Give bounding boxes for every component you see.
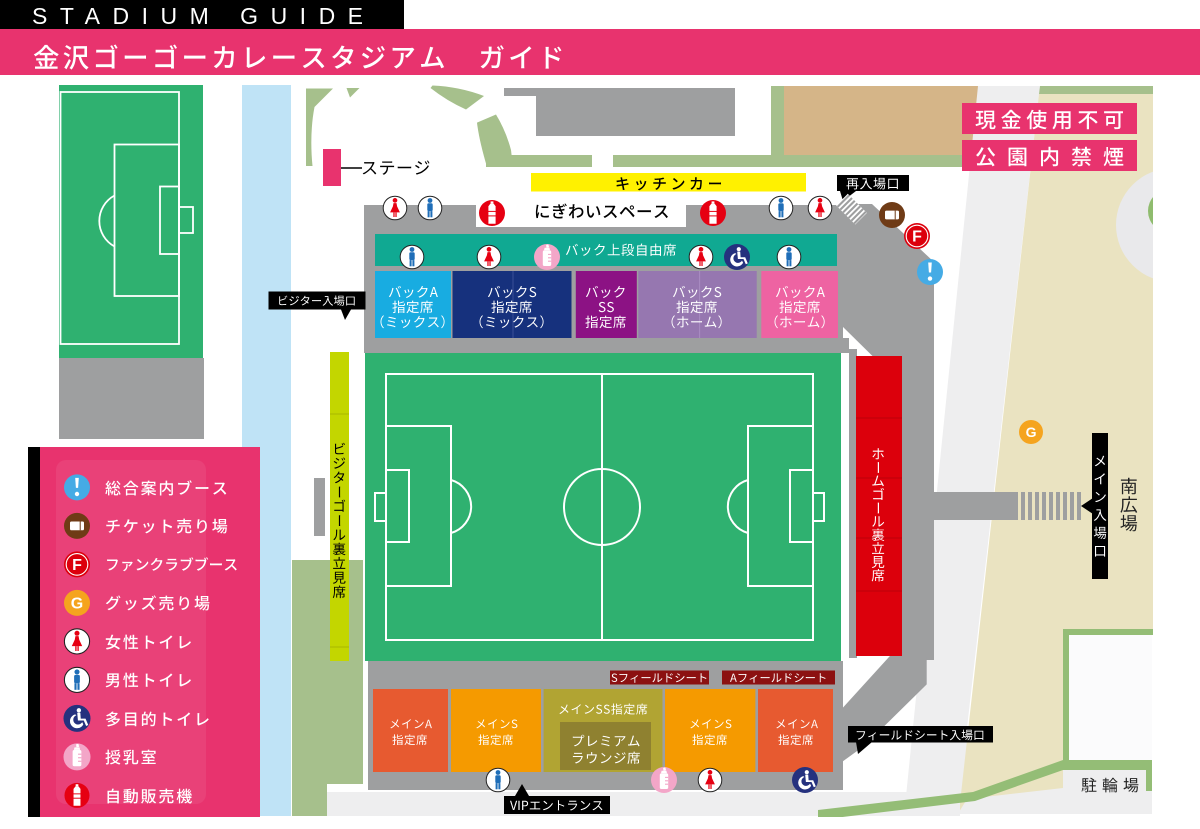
svg-text:F: F	[72, 557, 82, 574]
svg-text:G: G	[71, 596, 83, 613]
